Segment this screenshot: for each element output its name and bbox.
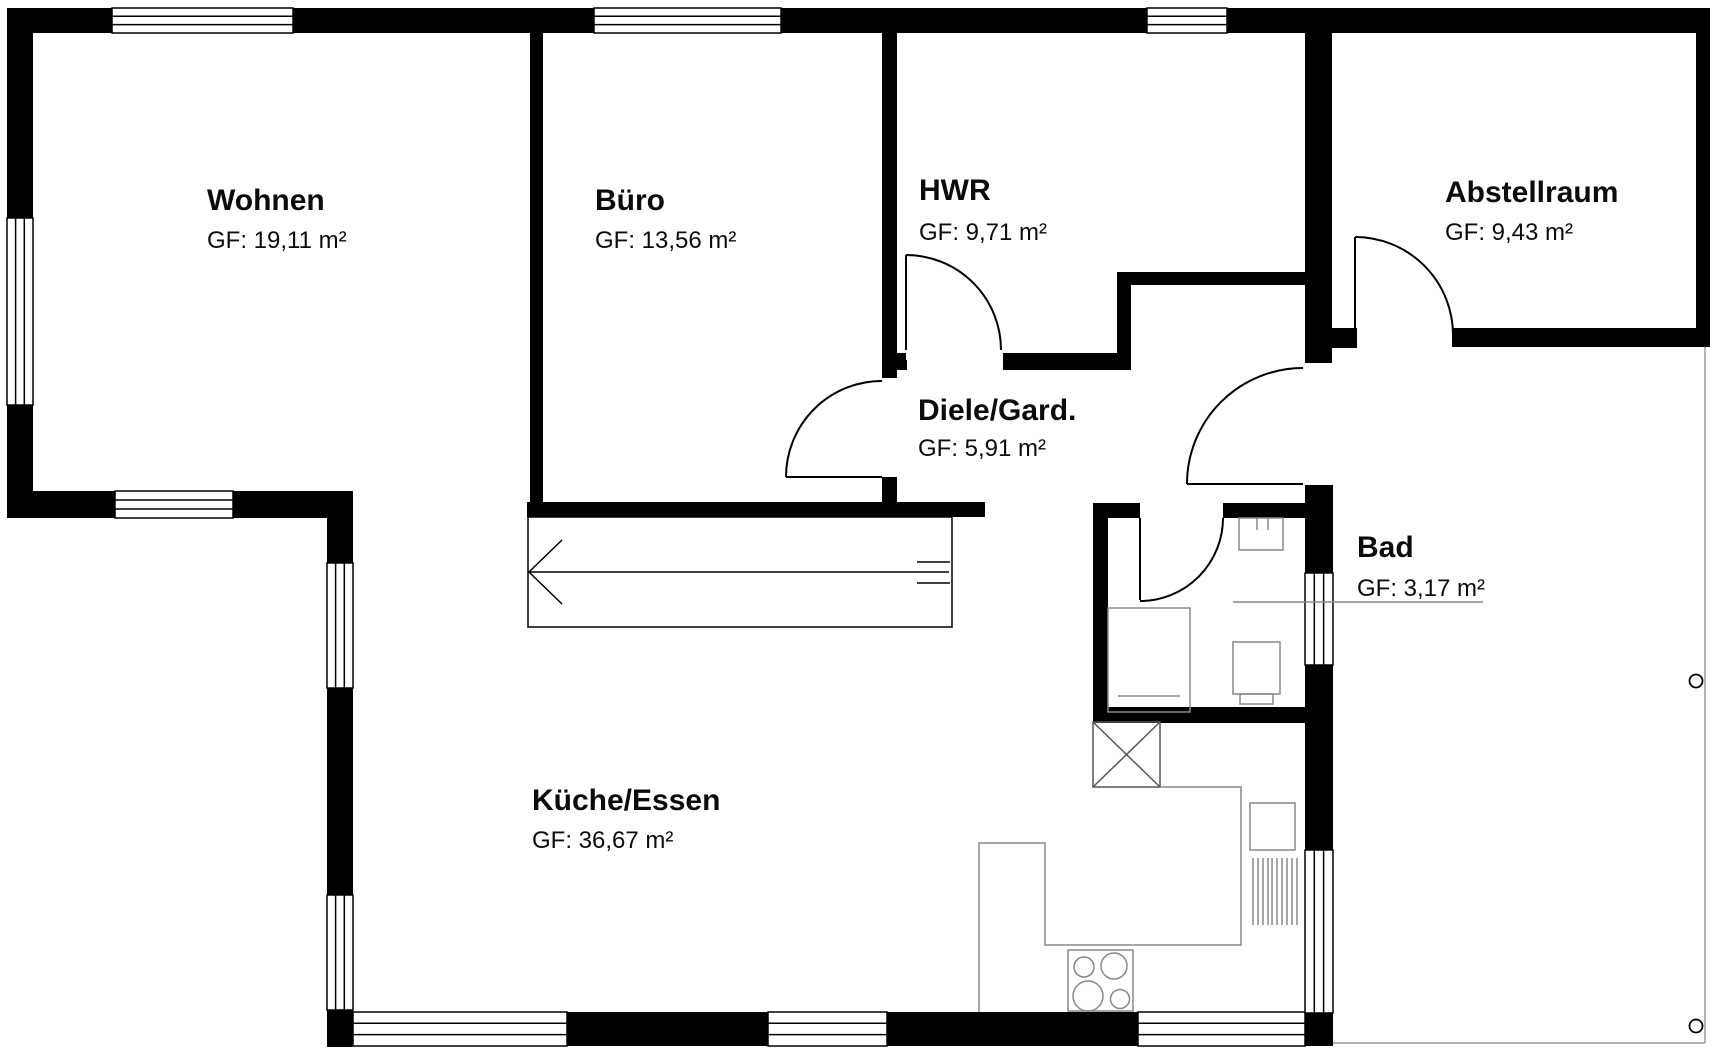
roof-posts — [1690, 675, 1703, 1033]
wall-hwr-step-vertical — [1117, 272, 1131, 370]
window-kueche-bottom-1 — [353, 1012, 567, 1046]
room-label-abstellraum: Abstellraum — [1445, 176, 1618, 209]
bath-fixtures — [1108, 518, 1283, 712]
window-buero-top — [594, 8, 781, 33]
cooktop — [1068, 950, 1133, 1011]
wall-bad-top-left — [1093, 503, 1140, 518]
kitchen-sink — [1250, 803, 1295, 850]
wall-abstellraum-right — [1696, 8, 1710, 347]
wall-right-upper — [1305, 8, 1332, 363]
wall-bad-bottom — [1093, 707, 1333, 723]
door-hwr — [906, 255, 1001, 350]
wall-hwr-bottom-left — [897, 353, 906, 370]
window-kueche-bottom-2 — [768, 1012, 887, 1046]
window-wohnen-bottom — [115, 491, 233, 518]
room-area-hwr: GF: 9,71 m² — [919, 219, 1047, 246]
room-area-kueche: GF: 36,67 m² — [532, 827, 673, 854]
shower — [1108, 608, 1190, 712]
window-kueche-left-lower — [327, 895, 353, 1010]
window-hwr-top — [1147, 8, 1227, 33]
window-kueche-bottom-3 — [1138, 1012, 1305, 1046]
wall-abstellraum-stub — [1332, 328, 1357, 348]
door-buero — [786, 381, 882, 477]
room-area-diele: GF: 5,91 m² — [918, 435, 1046, 462]
room-label-hwr: HWR — [919, 174, 991, 207]
washbasin — [1239, 518, 1283, 550]
stairs — [528, 517, 952, 627]
floorplan-page: Wohnen GF: 19,11 m² Büro GF: 13,56 m² HW… — [0, 0, 1720, 1048]
shaft-x-box — [1093, 722, 1160, 787]
terrace-boundary — [1333, 347, 1705, 1043]
kitchen-fixtures — [979, 722, 1297, 1012]
window-bad-right — [1305, 573, 1333, 665]
floorplan-drawing: Wohnen GF: 19,11 m² Büro GF: 13,56 m² HW… — [0, 0, 1720, 1048]
wall-diele-bottom — [527, 502, 985, 517]
wall-bad-left — [1093, 503, 1108, 723]
room-area-abstellraum: GF: 9,43 m² — [1445, 219, 1573, 246]
door-bad — [1140, 518, 1223, 601]
window-kueche-left-upper — [327, 563, 353, 688]
room-area-bad: GF: 3,17 m² — [1357, 575, 1485, 602]
wall-wohnen-buero — [530, 33, 543, 517]
toilet — [1233, 642, 1280, 704]
window-wohnen-left — [7, 218, 33, 405]
roof-post-lower — [1690, 1020, 1703, 1033]
wall-buero-right — [882, 33, 897, 378]
room-label-buero: Büro — [595, 184, 665, 217]
wall-buero-stub — [882, 477, 897, 505]
roof-post-upper — [1690, 675, 1703, 688]
room-label-bad: Bad — [1357, 531, 1414, 564]
door-entrance — [1187, 368, 1303, 484]
room-area-buero: GF: 13,56 m² — [595, 227, 736, 254]
room-label-kueche: Küche/Essen — [532, 784, 720, 817]
wall-bad-top-right — [1223, 503, 1305, 518]
window-wohnen-top — [112, 8, 293, 33]
wall-hwr-bottom — [1003, 353, 1131, 370]
window-kueche-right — [1305, 850, 1333, 1013]
radiator — [1253, 858, 1297, 925]
door-abstellraum — [1355, 237, 1453, 335]
room-label-wohnen: Wohnen — [207, 184, 325, 217]
wall-abstellraum-bottom — [1452, 328, 1710, 347]
room-label-diele: Diele/Gard. — [918, 394, 1076, 427]
wall-hwr-step-horizontal — [1131, 272, 1307, 285]
room-area-wohnen: GF: 19,11 m² — [207, 227, 347, 254]
